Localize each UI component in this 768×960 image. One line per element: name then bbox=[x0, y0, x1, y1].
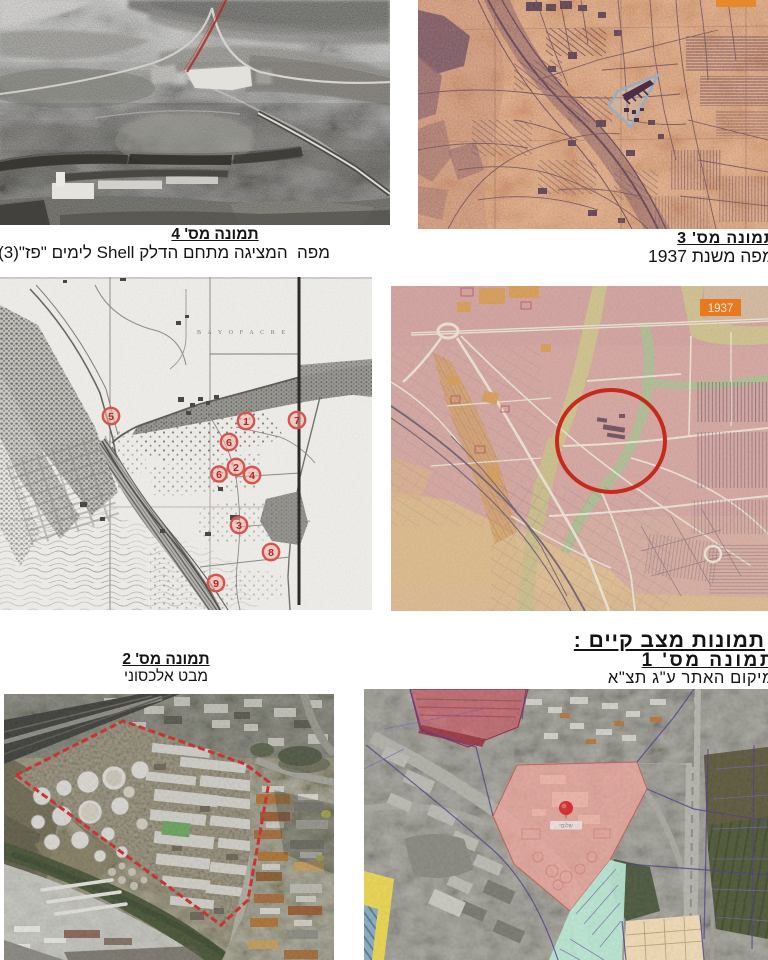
svg-text:2: 2 bbox=[233, 462, 239, 474]
svg-text:4: 4 bbox=[249, 470, 255, 482]
svg-text:6: 6 bbox=[216, 469, 222, 481]
svg-text:7: 7 bbox=[294, 415, 300, 427]
svg-text:9: 9 bbox=[213, 578, 219, 590]
svg-text:1937: 1937 bbox=[708, 303, 734, 315]
svg-text:8: 8 bbox=[268, 547, 274, 559]
svg-text:1: 1 bbox=[243, 416, 249, 428]
svg-text:6: 6 bbox=[226, 437, 232, 449]
svg-text:5: 5 bbox=[108, 411, 114, 423]
svg-text:3: 3 bbox=[236, 520, 242, 532]
